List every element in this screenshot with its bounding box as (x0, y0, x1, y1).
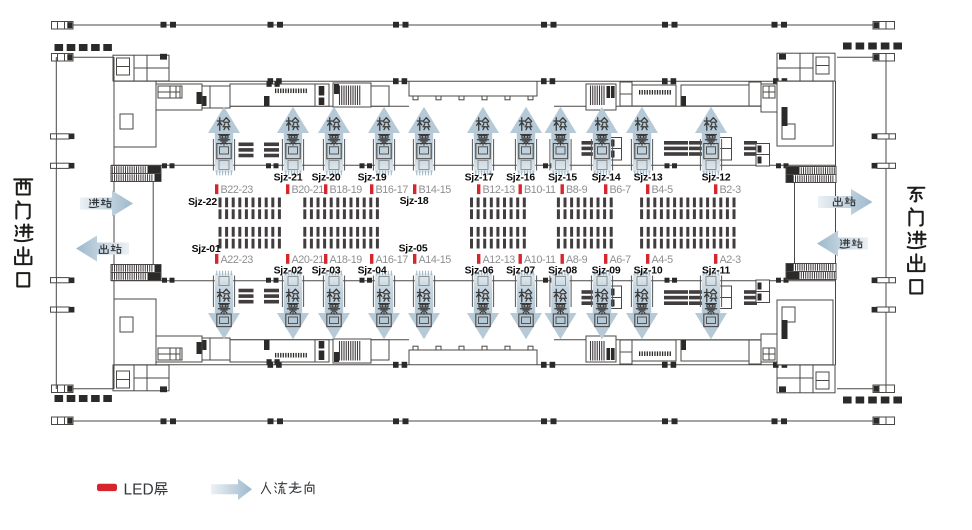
svg-text:B14-15: B14-15 (419, 184, 452, 196)
svg-text:A18-19: A18-19 (330, 254, 363, 266)
svg-text:Sjz-12: Sjz-12 (702, 173, 731, 184)
svg-text:Sjz-17: Sjz-17 (465, 173, 494, 184)
svg-text:B10-11: B10-11 (524, 184, 556, 196)
svg-text:B12-13: B12-13 (483, 184, 516, 196)
svg-text:B18-19: B18-19 (330, 184, 363, 196)
svg-text:Sjz-01: Sjz-01 (192, 244, 221, 255)
svg-text:A6-7: A6-7 (610, 254, 632, 266)
svg-text:Sjz-14: Sjz-14 (592, 173, 621, 184)
svg-text:Sjz-19: Sjz-19 (358, 173, 387, 184)
svg-text:Sjz-03: Sjz-03 (312, 266, 341, 277)
svg-text:Sjz-13: Sjz-13 (634, 173, 663, 184)
svg-text:B22-23: B22-23 (221, 184, 254, 196)
svg-text:Sjz-08: Sjz-08 (548, 266, 577, 277)
svg-text:A4-5: A4-5 (652, 254, 674, 266)
svg-text:Sjz-22: Sjz-22 (188, 197, 217, 208)
svg-text:Sjz-04: Sjz-04 (358, 266, 387, 277)
svg-text:Sjz-06: Sjz-06 (465, 266, 494, 277)
svg-text:Sjz-10: Sjz-10 (634, 266, 663, 277)
svg-text:B8-9: B8-9 (566, 184, 588, 196)
svg-text:A12-13: A12-13 (483, 254, 516, 266)
svg-text:B20-21: B20-21 (292, 184, 325, 196)
svg-text:B6-7: B6-7 (610, 184, 632, 196)
svg-text:Sjz-07: Sjz-07 (506, 266, 535, 277)
svg-text:Sjz-16: Sjz-16 (506, 173, 535, 184)
svg-text:A20-21: A20-21 (292, 254, 325, 266)
svg-text:Sjz-20: Sjz-20 (312, 173, 341, 184)
svg-text:A2-3: A2-3 (720, 254, 742, 266)
svg-text:A14-15: A14-15 (419, 254, 452, 266)
svg-text:LED: LED (124, 482, 154, 499)
svg-text:A8-9: A8-9 (566, 254, 588, 266)
svg-text:Sjz-05: Sjz-05 (399, 244, 428, 255)
svg-text:B2-3: B2-3 (720, 184, 742, 196)
svg-text:A16-17: A16-17 (376, 254, 409, 266)
svg-text:Sjz-09: Sjz-09 (592, 266, 621, 277)
svg-text:B4-5: B4-5 (652, 184, 674, 196)
svg-text:Sjz-02: Sjz-02 (274, 266, 303, 277)
svg-text:A22-23: A22-23 (221, 254, 254, 266)
svg-text:Sjz-18: Sjz-18 (400, 196, 429, 207)
svg-text:Sjz-15: Sjz-15 (548, 173, 577, 184)
svg-text:Sjz-11: Sjz-11 (702, 266, 731, 277)
svg-text:B16-17: B16-17 (376, 184, 409, 196)
svg-text:A10-11: A10-11 (524, 254, 556, 266)
svg-text:Sjz-21: Sjz-21 (274, 173, 303, 184)
